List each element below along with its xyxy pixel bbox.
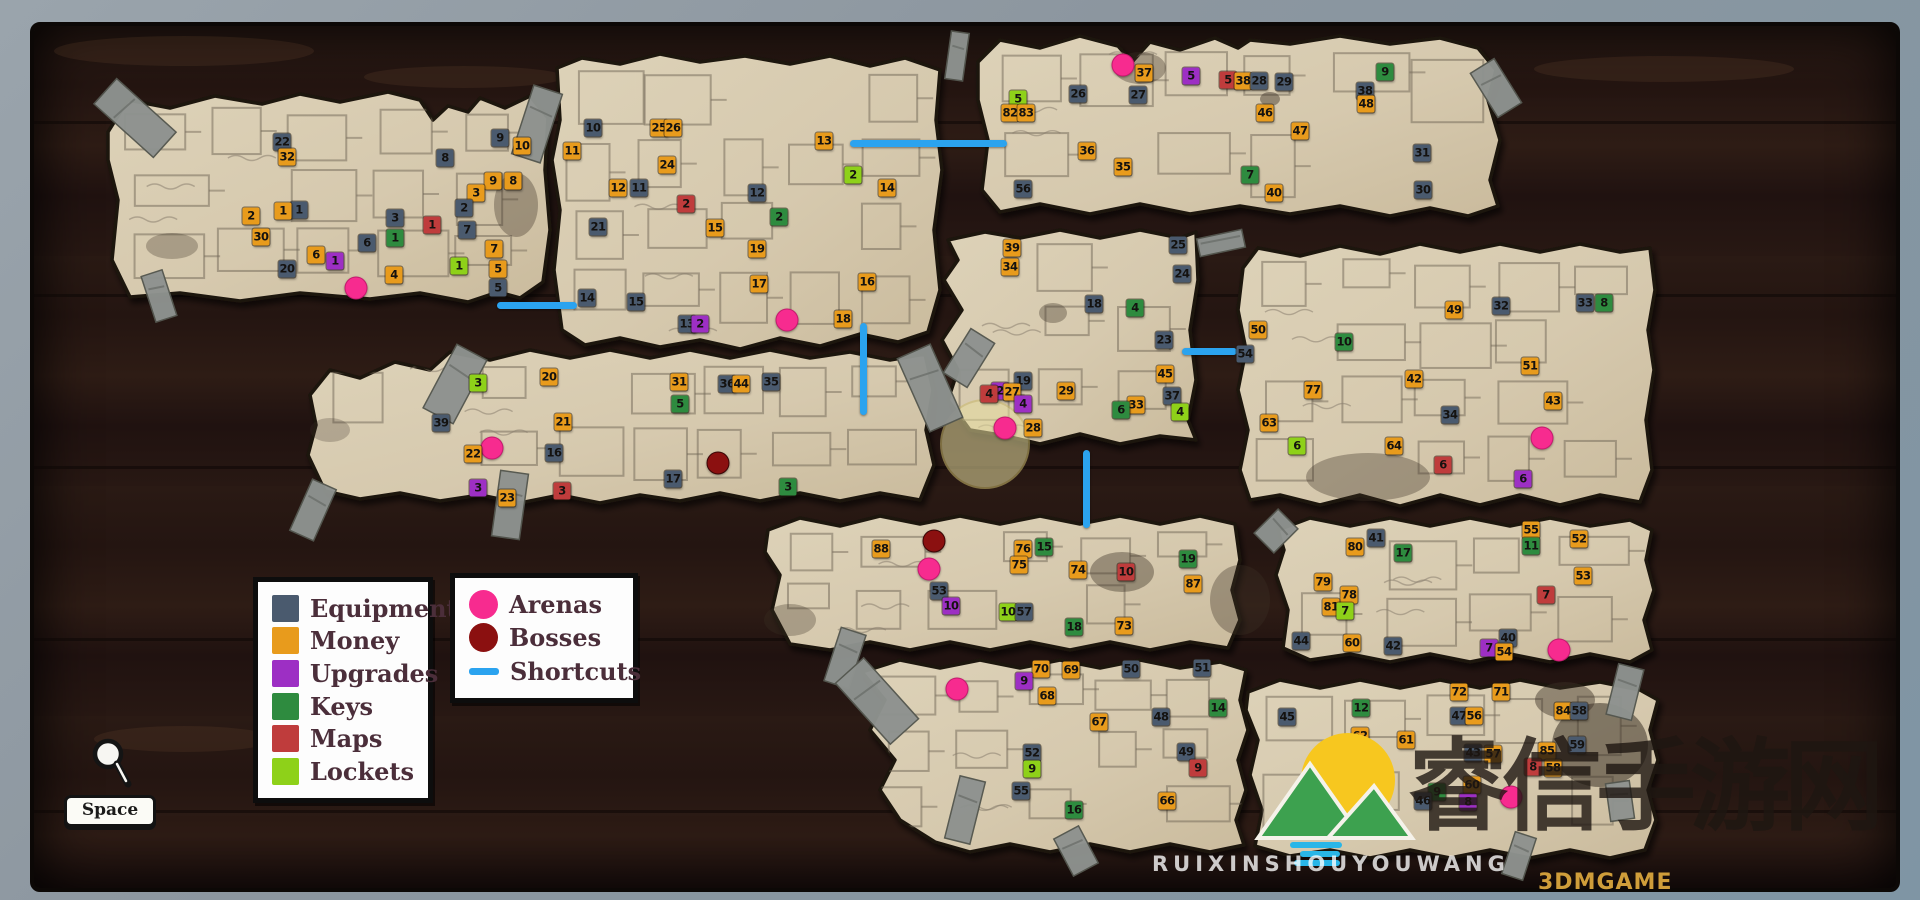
watermark-cn-text: 睿信手游网 [1408,736,1878,836]
watermark-brand-text: 3DMGAME [1538,870,1672,895]
game-map-screen: 2232910898321123173016761120545102526131… [0,0,1920,900]
watermark-pinyin-text: RUIXINSHOUYOUWANG [1152,852,1510,876]
